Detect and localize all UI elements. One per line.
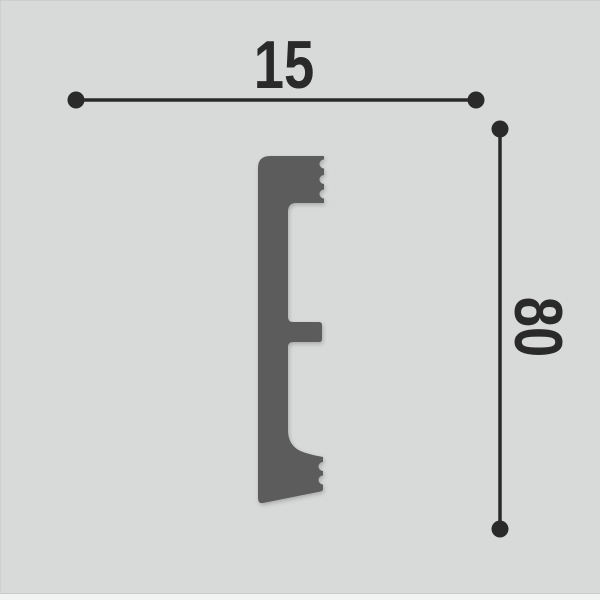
technical-drawing-svg: 15 80 [0, 0, 600, 600]
profile-diagram-canvas: 15 80 [0, 0, 600, 600]
top-edge-line [0, 0, 600, 1]
width-dimension-group: 15 [68, 27, 485, 108]
height-dimension-bottom-dot [492, 521, 509, 538]
profile-shape-group [258, 156, 324, 503]
width-dimension-right-dot [468, 92, 485, 109]
left-edge-line [0, 0, 1, 600]
height-dimension-top-dot [492, 121, 509, 138]
profile-shape [258, 156, 324, 503]
width-dimension-left-dot [68, 92, 85, 109]
height-dimension-label: 80 [500, 297, 576, 358]
width-dimension-label: 15 [254, 27, 315, 103]
height-dimension-group: 80 [492, 121, 576, 538]
bottom-edge-strip [0, 593, 600, 600]
